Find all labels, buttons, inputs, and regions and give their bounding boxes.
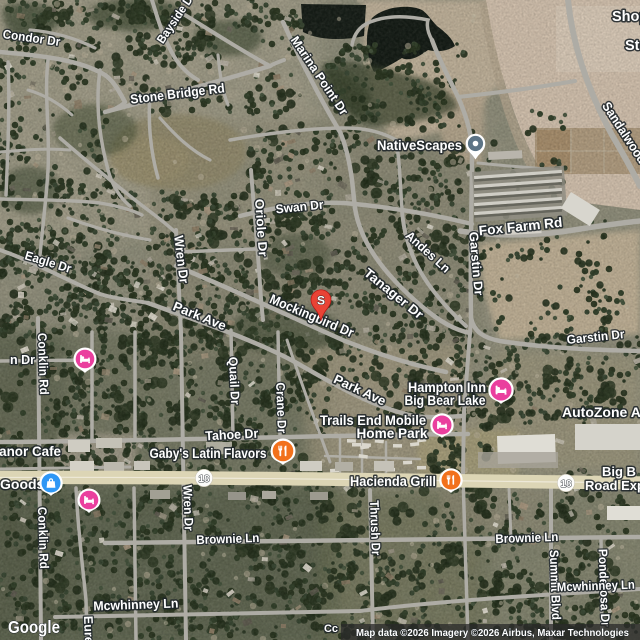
svg-text:Brownie Ln: Brownie Ln [495,530,558,546]
svg-text:Home Park: Home Park [357,426,428,441]
svg-text:Wren Dr: Wren Dr [180,485,196,532]
svg-text:Big Bear Lake: Big Bear Lake [405,393,486,408]
svg-text:n Dr: n Dr [10,353,35,367]
svg-text:Quail Dr: Quail Dr [226,356,242,405]
svg-text:Google: Google [8,617,60,637]
svg-text:NativeScapes: NativeScapes [377,137,462,153]
svg-text:S: S [317,294,325,308]
svg-text:Sta: Sta [625,38,640,54]
svg-text:Hacienda Grill: Hacienda Grill [350,474,436,489]
svg-text:18: 18 [198,474,210,485]
svg-text:Gaby's Latin Flavors: Gaby's Latin Flavors [150,446,267,461]
svg-text:Map data ©2026 Imagery ©2026 A: Map data ©2026 Imagery ©2026 Airbus, Max… [356,627,629,639]
svg-text:Manor Cafe: Manor Cafe [0,444,61,459]
svg-text:Cc: Cc [324,623,338,635]
svg-text:Goods: Goods [0,476,45,492]
svg-text:Crane Dr: Crane Dr [273,382,289,434]
svg-text:Conklin Rd: Conklin Rd [35,507,51,569]
svg-text:Big B: Big B [602,464,636,479]
svg-text:Tahoe Dr: Tahoe Dr [205,426,259,444]
svg-text:Thrush Dr: Thrush Dr [367,500,383,556]
svg-text:Shopp: Shopp [612,9,640,25]
svg-text:Mcwhinney Ln: Mcwhinney Ln [93,596,179,614]
svg-text:Conklin Rd: Conklin Rd [35,333,51,395]
svg-text:Eure: Eure [81,616,96,640]
svg-text:Road Exp: Road Exp [585,478,640,493]
svg-text:AutoZone Au: AutoZone Au [562,404,640,420]
svg-text:Brownie Ln: Brownie Ln [196,531,259,547]
svg-text:18: 18 [560,479,572,490]
svg-text:Mcwhinney Ln: Mcwhinney Ln [557,578,635,595]
